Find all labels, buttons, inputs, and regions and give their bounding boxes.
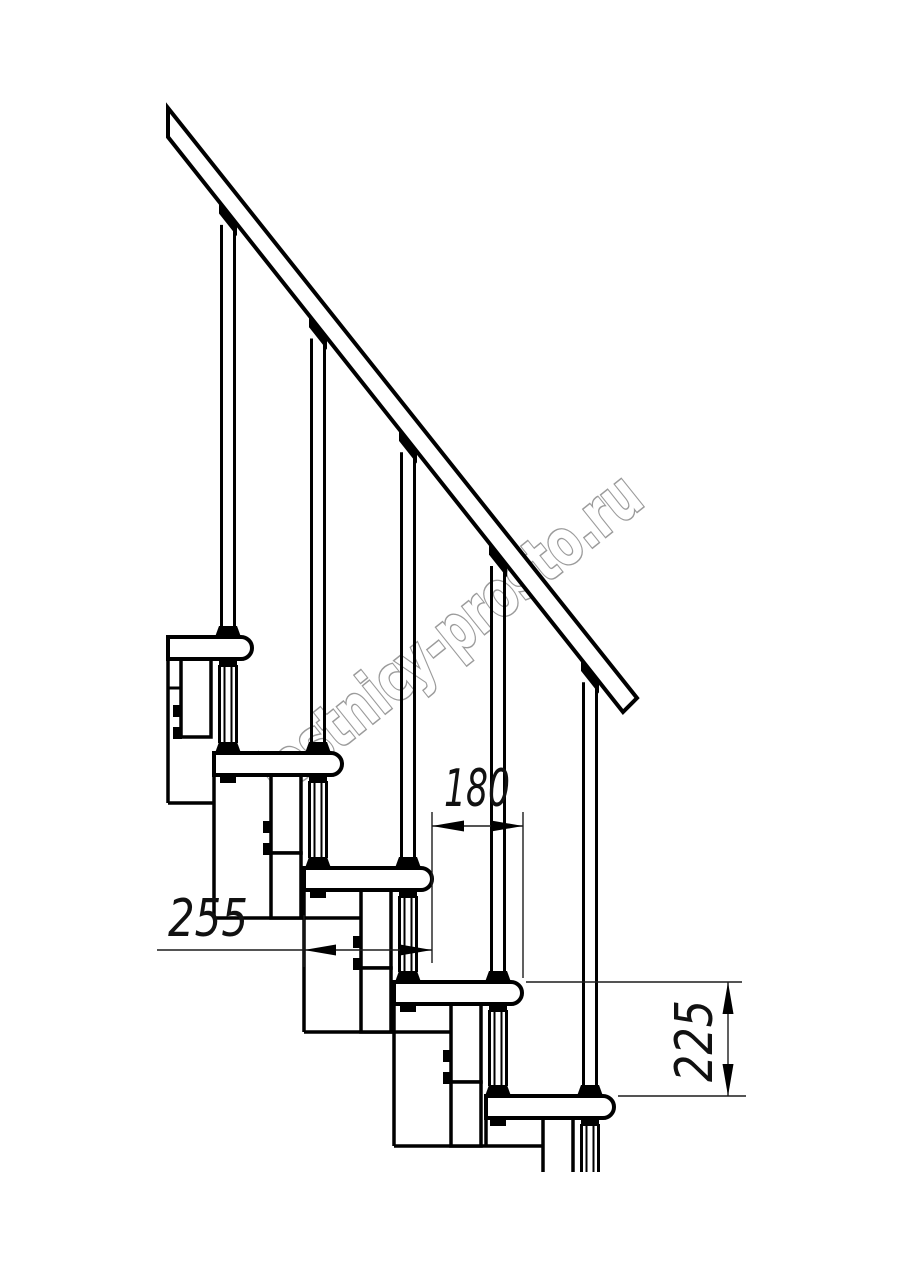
- dimension-label-180: 180: [444, 759, 510, 819]
- tread-1: [168, 637, 252, 659]
- staircase-technical-drawing: lestnicy-prosto.ru180255225: [0, 0, 914, 1280]
- tread-5: [486, 1096, 614, 1118]
- tread-3: [304, 868, 432, 890]
- dimension-label-225: 225: [665, 1000, 725, 1082]
- tread-2: [214, 753, 342, 775]
- drawing-page: lestnicy-prosto.ru180255225: [0, 0, 914, 1280]
- dimension-label-255: 255: [168, 889, 248, 949]
- tread-4: [394, 982, 522, 1004]
